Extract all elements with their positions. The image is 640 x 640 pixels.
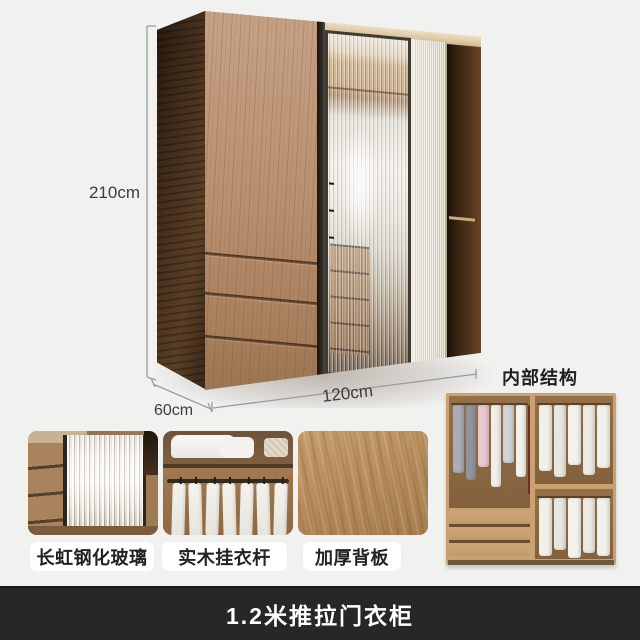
product-title: 1.2米推拉门衣柜	[226, 597, 414, 631]
drawer-front	[449, 511, 530, 524]
cloth-item	[466, 405, 476, 480]
cloth-item	[583, 405, 595, 475]
cloth-item	[503, 405, 514, 463]
cloth-item	[239, 483, 253, 535]
interior-right-bottom-zone	[535, 489, 613, 559]
depth-dimension-label: 60cm	[154, 402, 193, 420]
cloth-item	[205, 483, 219, 535]
feature-label-tempered-glass: 长虹钢化玻璃	[30, 542, 154, 571]
hanging-clothes-row	[172, 483, 287, 535]
cloth-item	[273, 483, 287, 535]
interior-structure-image	[446, 393, 616, 565]
cloth-item	[597, 498, 610, 556]
cloth-item	[528, 405, 530, 495]
folded-bedding	[220, 437, 254, 458]
hanging-clothes-row	[453, 405, 530, 495]
cloth-item	[597, 405, 610, 468]
feature-card-back-panel	[298, 431, 428, 535]
feature-card-tempered-glass	[28, 431, 158, 535]
cloth-item	[171, 483, 185, 535]
interior-right-top-zone	[535, 396, 613, 484]
cloth-item	[539, 405, 552, 471]
cloth-item	[554, 498, 566, 550]
product-image-canvas: 210cm 60cm 120cm 内部结构	[0, 0, 640, 640]
drawer-front	[449, 527, 530, 540]
interior-left-hanging-zone	[449, 396, 530, 508]
cloth-item	[554, 405, 566, 477]
hanging-clothes-row	[539, 405, 610, 477]
interior-structure-label: 内部结构	[502, 364, 578, 390]
cloth-item	[222, 483, 237, 535]
cloth-item	[568, 498, 581, 558]
height-dimension-label: 210cm	[86, 183, 140, 203]
thumbnail-drawers	[28, 443, 67, 535]
top-shelf-compartment	[163, 431, 293, 464]
feature-label-back-panel: 加厚背板	[303, 542, 401, 571]
cloth-item	[453, 405, 464, 473]
wood-bottom-rail	[28, 526, 158, 535]
dark-wood-corner	[144, 431, 158, 475]
cloth-item	[583, 498, 595, 553]
cloth-item	[256, 483, 271, 535]
interior-cabinet-shadow	[448, 560, 614, 565]
cloth-item	[539, 498, 552, 556]
cloth-item	[478, 405, 489, 467]
storage-basket	[264, 438, 287, 457]
wood-grain-texture	[298, 431, 428, 535]
hanging-clothes-row	[539, 498, 610, 558]
feature-label-clothes-rail: 实木挂衣杆	[162, 542, 287, 571]
feature-card-clothes-rail	[163, 431, 293, 535]
cloth-item	[188, 483, 203, 535]
cloth-item	[491, 405, 501, 487]
product-title-banner: 1.2米推拉门衣柜	[0, 586, 640, 640]
fluted-glass-panel	[63, 435, 146, 525]
drawer-front	[449, 543, 530, 556]
interior-drawers	[449, 511, 530, 556]
cloth-item	[516, 405, 526, 477]
cloth-item	[568, 405, 581, 465]
